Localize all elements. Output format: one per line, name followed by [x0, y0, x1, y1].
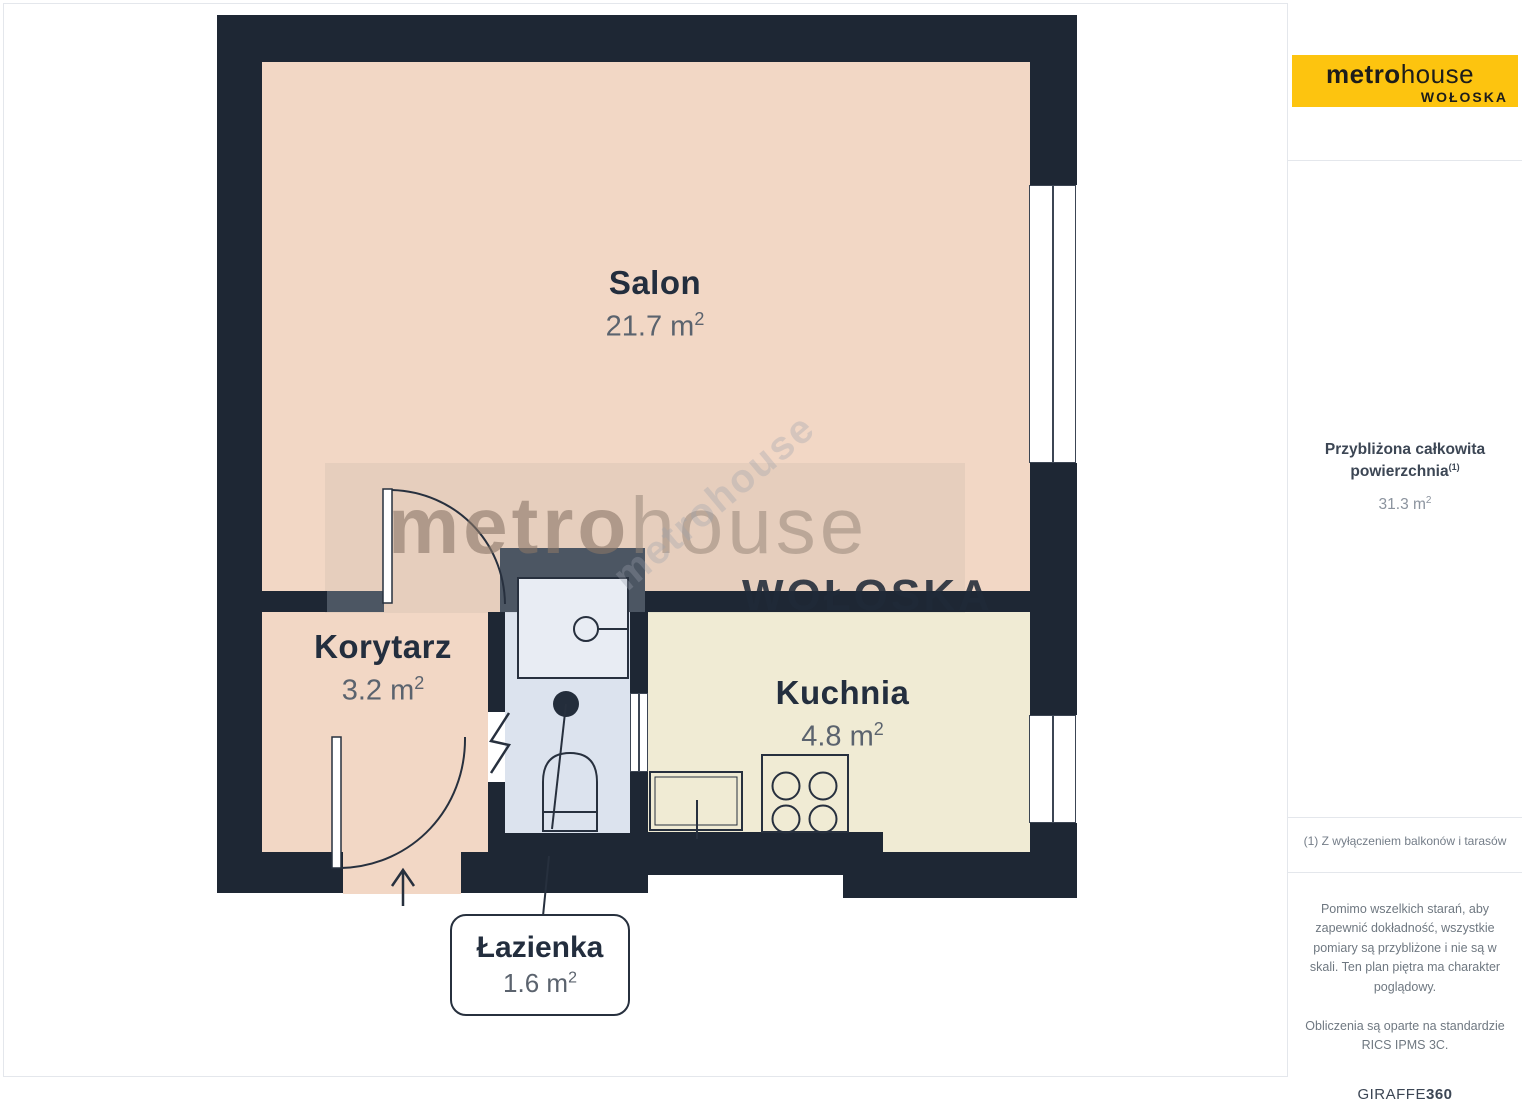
- room-area: 4.8 m2: [720, 719, 965, 754]
- wall-bottom-middle: [461, 852, 648, 893]
- wall-right-middle: [1030, 463, 1077, 715]
- agency-logo-wordmark: metrohouse: [1292, 59, 1508, 89]
- giraffe360-logo: GIRAFFE360: [1302, 1083, 1508, 1106]
- area-footnote: (1) Z wyłączeniem balkonów i tarasów: [1288, 834, 1522, 848]
- bathroom-floor: [505, 612, 630, 833]
- wall-left: [217, 15, 262, 893]
- window-pane-line: [1052, 716, 1054, 822]
- window-pane-line: [1052, 186, 1054, 462]
- salon-window: [1029, 185, 1076, 463]
- room-name: Kuchnia: [720, 674, 965, 712]
- sidebar-divider: [1288, 817, 1522, 818]
- entrance-floor: [343, 852, 461, 894]
- wall-top: [217, 15, 1077, 62]
- room-label-salon: Salon 21.7 m2: [500, 264, 810, 344]
- total-area-value: 31.3 m2: [1288, 495, 1522, 514]
- wall-bottom-left: [217, 852, 343, 893]
- window-pane-line: [638, 694, 640, 771]
- standard-text: Obliczenia są oparte na standardzie RICS…: [1302, 1017, 1508, 1056]
- watermark-brand-bold: metro: [388, 481, 630, 570]
- kitchen-window: [1029, 715, 1076, 823]
- room-label-lazienka-callout: Łazienka 1.6 m2: [450, 914, 630, 1016]
- floor-plan: metrohouse WOŁOSKA metrohouse Salon 21.7…: [0, 0, 1287, 1080]
- room-area: 3.2 m2: [268, 673, 498, 708]
- room-name: Łazienka: [477, 931, 604, 965]
- wall-door-header: [327, 591, 384, 612]
- wall-bathroom-bottom: [488, 833, 648, 852]
- disclaimer-block: Pomimo wszelkich starań, aby zapewnić do…: [1302, 872, 1508, 1106]
- room-area: 1.6 m2: [503, 968, 577, 999]
- total-area-block: Przybliżona całkowita powierzchnia(1) 31…: [1288, 439, 1522, 514]
- disclaimer-text: Pomimo wszelkich starań, aby zapewnić do…: [1302, 900, 1508, 997]
- room-name: Salon: [500, 264, 810, 302]
- agency-logo: metrohouse WOŁOSKA: [1292, 55, 1518, 107]
- agency-logo-branch: WOŁOSKA: [1292, 89, 1508, 105]
- info-sidebar: metrohouse WOŁOSKA Przybliżona całkowita…: [1287, 3, 1522, 1077]
- bathroom-kitchen-window: [630, 693, 648, 772]
- sidebar-divider: [1288, 160, 1522, 161]
- room-area: 21.7 m2: [500, 309, 810, 344]
- wall-right-upper: [1030, 62, 1077, 185]
- wall-korytarz-top: [262, 591, 327, 612]
- room-name: Korytarz: [268, 628, 498, 666]
- wall-bathroom-right-upper: [630, 612, 648, 693]
- room-label-kuchnia: Kuchnia 4.8 m2: [720, 674, 965, 754]
- watermark-subbrand: WOŁOSKA: [742, 574, 993, 618]
- total-area-label: Przybliżona całkowita powierzchnia(1): [1288, 439, 1522, 484]
- wall-bottom-right: [843, 852, 1077, 898]
- room-label-korytarz: Korytarz 3.2 m2: [268, 628, 498, 708]
